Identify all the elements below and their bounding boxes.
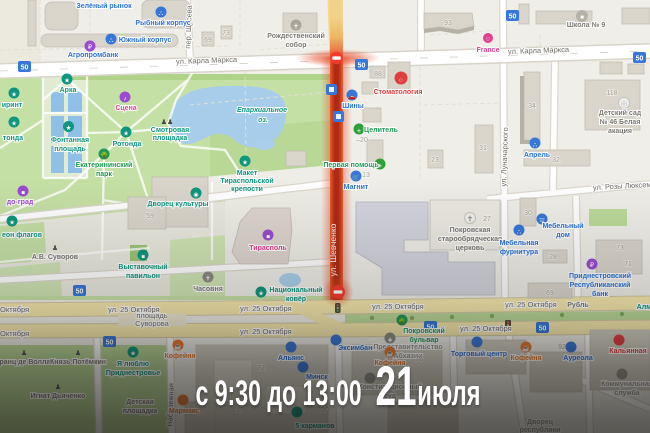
- svg-text:Рубль: Рубль: [567, 301, 589, 309]
- svg-text:бульвар: бульвар: [409, 336, 438, 344]
- svg-text:Смотровая: Смотровая: [151, 127, 189, 134]
- svg-text:♪: ♪: [123, 96, 126, 103]
- svg-text:Выставочный: Выставочный: [118, 263, 167, 271]
- svg-text:○: ○: [399, 77, 403, 84]
- svg-text:31: 31: [479, 145, 487, 152]
- svg-text:71: 71: [624, 261, 632, 268]
- svg-text:♟♟: ♟♟: [161, 118, 174, 126]
- svg-text:республики: республики: [520, 426, 561, 433]
- svg-text:Екатерининский: Екатерининский: [76, 161, 133, 169]
- svg-text:Мебельная: Мебельная: [500, 239, 539, 247]
- svg-text:Рыбный корпус: Рыбный корпус: [135, 19, 190, 27]
- svg-text:Южный корпус: Южный корпус: [119, 36, 172, 44]
- svg-text:★: ★: [258, 290, 264, 298]
- svg-text:59: 59: [146, 213, 154, 220]
- svg-text:★: ★: [66, 124, 72, 132]
- svg-text:Франц де Воллан: Франц де Воллан: [0, 359, 55, 366]
- svg-text:Сцена: Сцена: [115, 105, 136, 112]
- svg-text:павильон: павильон: [126, 273, 160, 280]
- svg-text:♟: ♟: [52, 244, 58, 252]
- svg-text:♟: ♟: [55, 383, 61, 391]
- svg-text:69: 69: [546, 290, 554, 297]
- svg-text:☉: ☉: [621, 101, 627, 109]
- svg-text:Республиканский: Республиканский: [570, 281, 631, 289]
- svg-text:Алм: Алм: [637, 304, 650, 311]
- svg-text:★: ★: [11, 120, 17, 128]
- svg-text:Целитель: Целитель: [364, 127, 399, 134]
- svg-text:50: 50: [509, 14, 517, 21]
- svg-text:ул. 25 Октября: ул. 25 Октября: [505, 300, 557, 309]
- svg-text:30: 30: [524, 210, 532, 217]
- svg-text:парк: парк: [96, 171, 112, 178]
- svg-text:Тираспольской: Тираспольской: [220, 177, 273, 185]
- svg-text:иринт: иринт: [2, 102, 23, 109]
- svg-text:🌳: 🌳: [100, 151, 108, 160]
- svg-text:■: ■: [21, 191, 25, 197]
- svg-text:★: ★: [11, 91, 17, 99]
- svg-text:✝: ✝: [467, 215, 474, 224]
- svg-text:Шины: Шины: [342, 103, 364, 110]
- svg-text:♟: ♟: [75, 349, 81, 357]
- svg-text:банк: банк: [592, 290, 608, 298]
- svg-text:тонда: тонда: [3, 135, 23, 142]
- svg-text:50: 50: [76, 289, 84, 296]
- svg-text:+: +: [357, 126, 362, 135]
- svg-text:оз.: оз.: [258, 117, 268, 124]
- svg-text:Эксимбанк: Эксимбанк: [338, 344, 376, 352]
- svg-text:Приднестровский: Приднестровский: [569, 272, 631, 280]
- svg-text:Магнит: Магнит: [344, 184, 369, 191]
- svg-text:Кальянная: Кальянная: [609, 348, 647, 355]
- svg-text:ковёр: ковёр: [286, 296, 306, 303]
- svg-text:★: ★: [242, 159, 248, 167]
- svg-text:Стоматология: Стоматология: [374, 89, 423, 96]
- svg-text:еон флагов: еон флагов: [2, 232, 43, 239]
- svg-text:Покровский: Покровский: [403, 327, 445, 335]
- svg-text:◈: ◈: [388, 338, 393, 344]
- svg-text:Дворец: Дворец: [527, 419, 554, 426]
- svg-text:служба: служба: [614, 389, 640, 397]
- svg-text:♟: ♟: [21, 349, 27, 357]
- svg-text:Детский сад: Детский сад: [599, 109, 642, 117]
- svg-text:Епархиальное: Епархиальное: [237, 107, 287, 114]
- svg-text:✝: ✝: [293, 23, 298, 31]
- svg-text:ул. 25 Октября: ул. 25 Октября: [240, 304, 292, 313]
- svg-text:Октября: Октября: [0, 329, 29, 338]
- svg-text:73: 73: [616, 245, 624, 252]
- svg-text:церковь: церковь: [456, 245, 485, 252]
- svg-text:Зелёный рынок: Зелёный рынок: [76, 2, 132, 10]
- svg-text:27: 27: [483, 216, 491, 223]
- svg-text:23: 23: [431, 157, 439, 164]
- svg-text:♡: ♡: [486, 36, 491, 43]
- svg-text:◉: ◉: [193, 193, 198, 199]
- svg-text:площадка: площадка: [153, 135, 188, 142]
- svg-text:Покровская: Покровская: [450, 227, 491, 234]
- svg-text:крепости: крепости: [231, 186, 263, 193]
- svg-text:Фонтанная: Фонтанная: [51, 137, 89, 144]
- svg-text:118: 118: [606, 90, 617, 97]
- svg-text:Суворова: Суворова: [135, 319, 169, 328]
- svg-text:Дворец культуры: Дворец культуры: [148, 201, 209, 208]
- svg-text:★: ★: [64, 77, 70, 85]
- svg-text:⛬: ⛬: [517, 230, 521, 236]
- svg-text:до-град: до-град: [7, 199, 34, 206]
- svg-text:■: ■: [266, 235, 270, 241]
- svg-text:34: 34: [528, 103, 536, 110]
- svg-text:Первая помощь: Первая помощь: [323, 162, 379, 169]
- svg-text:☕: ☕: [522, 345, 530, 353]
- svg-text:Тирасполь: Тирасполь: [249, 245, 287, 252]
- svg-text:ул. 25 Октября: ул. 25 Октября: [460, 324, 512, 333]
- svg-text:Коммунальная: Коммунальная: [601, 381, 650, 388]
- svg-text:⛬: ⛬: [109, 38, 113, 44]
- svg-text:🛒: 🛒: [352, 174, 360, 182]
- svg-text:Апрель: Апрель: [524, 152, 551, 159]
- svg-text:Князь Потёмкин: Князь Потёмкин: [50, 359, 106, 366]
- svg-text:★: ★: [123, 130, 129, 138]
- svg-text:дом: дом: [556, 232, 570, 239]
- svg-text:13: 13: [362, 172, 370, 179]
- svg-text:Агропромбанк: Агропромбанк: [68, 51, 119, 59]
- svg-text:Макет: Макет: [237, 170, 258, 177]
- svg-text:Мебельный: Мебельный: [542, 222, 583, 230]
- svg-text:ул. 25 Октября: ул. 25 Октября: [372, 302, 424, 311]
- svg-text:Часовня: Часовня: [193, 286, 223, 293]
- svg-text:32: 32: [552, 157, 560, 164]
- svg-text:старообрядческая: старообрядческая: [438, 235, 502, 243]
- svg-text:№ 46 Белая: № 46 Белая: [600, 118, 641, 126]
- svg-text:50: 50: [539, 326, 547, 333]
- svg-text:ул. Шевченко: ул. Шевченко: [328, 223, 338, 276]
- svg-text:🚗: 🚗: [348, 95, 356, 101]
- svg-text:50: 50: [106, 340, 114, 347]
- svg-text:■: ■: [580, 15, 584, 21]
- svg-text:Ауреола: Ауреола: [563, 355, 593, 362]
- svg-text:фурнитура: фурнитура: [500, 249, 538, 256]
- svg-text:73: 73: [222, 30, 230, 37]
- svg-text:Арка: Арка: [60, 87, 77, 94]
- svg-text:■: ■: [141, 255, 145, 261]
- svg-text:50: 50: [636, 56, 644, 63]
- svg-text:Игнат Дьяченко: Игнат Дьяченко: [31, 393, 86, 400]
- svg-text:🌳: 🌳: [398, 318, 405, 326]
- svg-text:93: 93: [444, 20, 452, 27]
- svg-text:50: 50: [358, 63, 366, 70]
- svg-text:5 карманов: 5 карманов: [295, 423, 335, 430]
- svg-text:акация: акация: [608, 128, 632, 135]
- svg-text:★: ★: [9, 219, 15, 227]
- svg-text:собор: собор: [285, 41, 306, 49]
- svg-text:площадь: площадь: [54, 146, 86, 153]
- svg-text:50: 50: [21, 65, 29, 72]
- svg-text:88: 88: [374, 71, 382, 78]
- svg-text:ул. 25 Октября: ул. 25 Октября: [240, 327, 292, 336]
- svg-text:28: 28: [549, 254, 557, 261]
- svg-text:Ротонда: Ротонда: [113, 141, 142, 148]
- svg-text:Школа № 9: Школа № 9: [567, 21, 606, 29]
- svg-text:Национальный: Национальный: [269, 286, 322, 294]
- svg-text:Рождественский: Рождественский: [267, 32, 325, 40]
- svg-text:Представительство: Представительство: [373, 344, 442, 351]
- svg-text:☕: ☕: [174, 343, 182, 351]
- svg-text:Октября: Октября: [0, 305, 29, 314]
- svg-text:А.В. Суворов: А.В. Суворов: [32, 254, 79, 261]
- svg-text:⛬: ⛬: [533, 143, 537, 149]
- svg-text:France: France: [477, 47, 500, 54]
- svg-text:⛬: ⛬: [159, 11, 163, 17]
- svg-text:–20: –20: [356, 137, 368, 144]
- svg-text:69: 69: [204, 37, 212, 44]
- svg-text:✝: ✝: [205, 275, 210, 283]
- svg-text:92: 92: [558, 344, 566, 351]
